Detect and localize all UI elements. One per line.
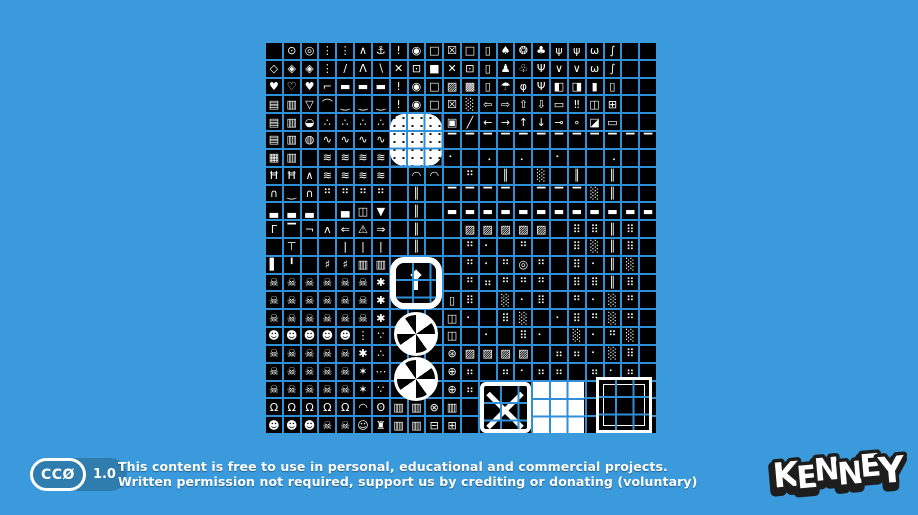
tile-cell	[444, 168, 460, 184]
tile-cell: ▨	[462, 221, 478, 237]
tile-cell: ⠶	[498, 364, 514, 380]
tile-cell: ▩	[462, 79, 478, 95]
tile-cell: ☠	[266, 382, 282, 398]
tile-cell: ♥	[302, 79, 318, 95]
tile-cell	[391, 239, 407, 255]
tile-cell: ◒	[302, 114, 318, 130]
tile-cell: ▔	[551, 132, 567, 148]
tile-cell: ☠	[266, 310, 282, 326]
tile-cell: ◈	[284, 61, 300, 77]
tile-cell: ↑	[515, 114, 531, 130]
tile-cell	[551, 257, 567, 273]
tile-cell	[640, 221, 656, 237]
tile-cell: ▯	[480, 79, 496, 95]
tile-cell: ▨	[480, 221, 496, 237]
tile-cell	[444, 221, 460, 237]
tile-cell: ⇒	[373, 221, 389, 237]
tile-cell: ✱	[373, 292, 389, 308]
tile-cell: ⚓	[373, 43, 389, 59]
tile-cell: ⠿	[569, 310, 585, 326]
tile-cell: ⠛	[622, 310, 638, 326]
tile-cell	[444, 239, 460, 255]
tile-cell: ⠶	[551, 346, 567, 362]
tile-cell: ◉	[409, 79, 425, 95]
tile-cell: ⠶	[462, 382, 478, 398]
tile-cell: ☠	[337, 292, 353, 308]
tile-cell: ▔	[587, 132, 603, 148]
tile-cell: ║	[569, 168, 585, 184]
tile-cell: ♟	[498, 61, 514, 77]
tile-cell: ✶	[355, 364, 371, 380]
tile-cell: φ	[515, 79, 531, 95]
tile-cell: ✕	[444, 61, 460, 77]
tile-cell: ☠	[302, 275, 318, 291]
tile-cell: ∿	[319, 132, 335, 148]
tile-cell: ☠	[319, 346, 335, 362]
tile-cell: ☠	[302, 364, 318, 380]
tile-cell	[622, 96, 638, 112]
tile-cell: →	[498, 114, 514, 130]
tile-cell: ⊞	[605, 96, 621, 112]
tile-cell: □	[426, 79, 442, 95]
tile-cell: ∖	[373, 61, 389, 77]
tile-cell: ♯	[319, 257, 335, 273]
tile-cell: ░	[498, 292, 514, 308]
tile-cell: ⠿	[462, 292, 478, 308]
tile-cell: ⠂	[515, 364, 531, 380]
tile-cell: ◠	[426, 168, 442, 184]
tile-cell: ░	[587, 186, 603, 202]
tile-cell: ☠	[337, 382, 353, 398]
tile-cell: ↓	[533, 114, 549, 130]
tile-cell: ⠛	[569, 292, 585, 308]
tile-cell	[462, 417, 478, 433]
tile-cell: ∿	[355, 132, 371, 148]
tile-cell: ⠛	[498, 257, 514, 273]
tile-cell: ☠	[284, 275, 300, 291]
tile-cell	[426, 221, 442, 237]
tile-cell: ⊗	[426, 399, 442, 415]
tile-cell: ▔	[569, 132, 585, 148]
license-text: This content is free to use in personal,…	[118, 460, 697, 489]
tile-cell: ⠿	[622, 221, 638, 237]
tile-cell: ✱	[355, 346, 371, 362]
tile-cell: ≋	[373, 150, 389, 166]
tile-cell: ▥	[391, 417, 407, 433]
tile-cell: ≋	[337, 150, 353, 166]
tile-cell: ☠	[319, 292, 335, 308]
tile-cell	[426, 186, 442, 202]
tile-cell: ╹	[284, 257, 300, 273]
tile-cell	[391, 203, 407, 219]
tile-cell: ⊟	[426, 417, 442, 433]
tile-cell: ☠	[319, 417, 335, 433]
tile-cell: ⠶	[533, 364, 549, 380]
tile-cell	[640, 310, 656, 326]
tile-cell	[391, 186, 407, 202]
tile-cell: ☠	[302, 310, 318, 326]
tile-cell	[444, 257, 460, 273]
tile-cell: ☠	[302, 346, 318, 362]
tile-cell: ♡	[284, 79, 300, 95]
tile-cell: ⠿	[569, 239, 585, 255]
tile-cell: ⊤	[284, 239, 300, 255]
tile-cell: ║	[498, 168, 514, 184]
tile-cell: ▥	[409, 399, 425, 415]
tile-cell	[569, 364, 585, 380]
tile-cell: ░	[605, 292, 621, 308]
tile-cell: ⊞	[444, 417, 460, 433]
tile-cell: ✱	[373, 310, 389, 326]
tile-cell: ◧	[551, 79, 567, 95]
tile-cell	[640, 239, 656, 255]
tile-cell: ▥	[355, 257, 371, 273]
tile-cell: ⠄	[515, 150, 531, 166]
tile-cell: ⠿	[622, 239, 638, 255]
tile-cell: ▬	[444, 203, 460, 219]
tile-cell: ▨	[462, 346, 478, 362]
tile-cell	[498, 328, 514, 344]
tile-cell: ░	[533, 168, 549, 184]
tile-cell: ▔	[533, 132, 549, 148]
tile-cell	[533, 310, 549, 326]
tile-cell	[391, 168, 407, 184]
kenney-logo-svg: KENNEY KENNEY	[760, 430, 915, 510]
tile-cell: ☠	[284, 310, 300, 326]
tile-cell: ░	[605, 310, 621, 326]
tile-cell: ▔	[605, 132, 621, 148]
license-text-line2: Written permission not required, support…	[118, 475, 697, 490]
tile-cell	[640, 43, 656, 59]
tile-cell: ⠂	[587, 257, 603, 273]
tile-cell: ▨	[480, 346, 496, 362]
tile-cell: Ω	[284, 399, 300, 415]
tile-cell: ▨	[498, 221, 514, 237]
tile-cell	[622, 150, 638, 166]
tile-cell: ∿	[373, 132, 389, 148]
tile-cell: ⠿	[515, 328, 531, 344]
tile-cell: ☻	[302, 417, 318, 433]
tile-cell	[426, 239, 442, 255]
tile-cell: ‿	[337, 96, 353, 112]
tile-cell: ▔	[498, 132, 514, 148]
tile-cell: ⋮	[355, 328, 371, 344]
tile-cell	[551, 275, 567, 291]
tile-cell: ☠	[284, 292, 300, 308]
tile-cell: ░	[515, 310, 531, 326]
tile-cell: ▥	[284, 132, 300, 148]
tile-cell	[533, 150, 549, 166]
tile-cell: ☠	[337, 275, 353, 291]
tile-cell: Ħ	[266, 168, 282, 184]
tile-cell: ▔	[498, 186, 514, 202]
tile-cell	[640, 292, 656, 308]
tile-cell: ╱	[462, 114, 478, 130]
tile-cell	[640, 61, 656, 77]
tile-cell	[622, 79, 638, 95]
tile-cell: ▔	[462, 186, 478, 202]
tile-cell: ☠	[266, 292, 282, 308]
tile-cell: ☺	[355, 417, 371, 433]
tile-cell: ❂	[515, 43, 531, 59]
tile-cell	[640, 79, 656, 95]
kenney-logo: KENNEY KENNEY	[760, 430, 915, 510]
tile-cell: ⠛	[462, 257, 478, 273]
tile-cell: ⠶	[462, 364, 478, 380]
tile-cell	[551, 328, 567, 344]
tile-cell: ▬	[462, 203, 478, 219]
tile-cell: ▽	[302, 96, 318, 112]
tile-cell: ◠	[355, 399, 371, 415]
tile-cell: ≋	[355, 168, 371, 184]
tile-cell: ∩	[302, 186, 318, 202]
tile-cell: ║	[409, 203, 425, 219]
tile-cell: ▥	[391, 399, 407, 415]
tile-cell: □	[462, 43, 478, 59]
tile-cell: ⠿	[569, 275, 585, 291]
tile-cell: Ψ	[533, 61, 549, 77]
cc0-icon: CCØ	[30, 458, 86, 491]
tile-cell: ▔	[480, 132, 496, 148]
tile-cell: ∵	[373, 328, 389, 344]
tile-cell: ☠	[266, 364, 282, 380]
tile-cell: ║	[605, 221, 621, 237]
tile-cell: ⠿	[587, 221, 603, 237]
tile-cell	[640, 346, 656, 362]
tile-cell: ☻	[319, 328, 335, 344]
tile-cell: ☠	[319, 364, 335, 380]
tile-cell: ∩	[266, 186, 282, 202]
tile-cell: ▥	[409, 417, 425, 433]
tile-cell: ║	[605, 168, 621, 184]
tile-cell: ⠿	[622, 275, 638, 291]
statue-icon	[414, 276, 418, 290]
tile-cell: ■	[426, 61, 442, 77]
tile-cell: ⠂	[480, 328, 496, 344]
tile-cell: !	[391, 43, 407, 59]
tile-cell: ☻	[337, 328, 353, 344]
tile-cell: ¬	[302, 221, 318, 237]
tile-cell: ⠿	[587, 275, 603, 291]
tile-cell: ∴	[373, 346, 389, 362]
tile-cell: ☻	[266, 417, 282, 433]
tile-cell: ⋯	[373, 364, 389, 380]
tile-cell: ▔	[462, 132, 478, 148]
tile-cell: ▬	[569, 203, 585, 219]
tile-cell: ⠛	[355, 186, 371, 202]
tile-cell	[551, 292, 567, 308]
tile-cell: ⇨	[498, 96, 514, 112]
tile-cell: ☠	[355, 310, 371, 326]
tile-cell: ‼	[569, 96, 585, 112]
x-braced-crate-tile	[480, 382, 531, 433]
tile-cell: ░	[622, 328, 638, 344]
tile-cell: ▔	[640, 132, 656, 148]
tile-cell: ☠	[337, 364, 353, 380]
tile-cell: Ω	[266, 399, 282, 415]
tile-cell: ▥	[444, 399, 460, 415]
tile-cell	[480, 292, 496, 308]
tile-cell: Ω	[302, 399, 318, 415]
tile-cell: ▯	[480, 43, 496, 59]
tile-cell: ☒	[444, 43, 460, 59]
tile-cell: ⇦	[480, 96, 496, 112]
tile-cell: ☻	[284, 417, 300, 433]
tile-cell	[302, 239, 318, 255]
tile-cell: ☻	[284, 328, 300, 344]
tilesheet-grid: ⊙◎⋮⋮∧⚓!◉□☒□▯♠❂♣ψψω∫◇◈◈⋮∕Λ∖✕⊡■✕⊡▯♟♧Ψ∨∨ω∫♥…	[266, 43, 656, 433]
tile-cell: ▯	[444, 292, 460, 308]
tile-cell: ☠	[355, 275, 371, 291]
tile-cell: ⠿	[533, 292, 549, 308]
tile-cell: ▔	[622, 132, 638, 148]
license-version: 1.0	[93, 467, 116, 482]
tile-cell: ⠛	[605, 328, 621, 344]
tile-cell: ▮	[587, 79, 603, 95]
tile-cell: ∧	[355, 43, 371, 59]
tile-cell: ⠂	[587, 292, 603, 308]
tile-cell: ▬	[533, 203, 549, 219]
tile-cell: ▃	[302, 203, 318, 219]
tile-cell: ▬	[622, 203, 638, 219]
tile-cell: ║	[605, 275, 621, 291]
tile-cell: ‿	[373, 96, 389, 112]
tile-cell	[444, 275, 460, 291]
tile-cell	[462, 150, 478, 166]
tile-cell: ◨	[569, 79, 585, 95]
tile-cell: ♜	[373, 417, 389, 433]
tile-cell: ║	[605, 239, 621, 255]
tile-cell: ▬	[640, 203, 656, 219]
tile-cell: ▬	[373, 79, 389, 95]
tile-cell: ∫	[605, 61, 621, 77]
tile-cell: ☠	[266, 275, 282, 291]
tile-cell: Ψ	[533, 79, 549, 95]
tile-cell: ⠛	[319, 186, 335, 202]
tile-cell: ☠	[284, 346, 300, 362]
tile-cell	[587, 168, 603, 184]
tile-cell: ☠	[337, 417, 353, 433]
tile-cell	[266, 239, 282, 255]
tile-cell: ⠛	[337, 186, 353, 202]
tile-cell	[640, 150, 656, 166]
tile-cell: ▨	[498, 346, 514, 362]
tile-cell: ψ	[551, 43, 567, 59]
tile-cell: ∴	[373, 114, 389, 130]
tile-cell: ⋮	[337, 43, 353, 59]
tile-cell: ⠿	[622, 346, 638, 362]
tile-cell: ⠛	[373, 186, 389, 202]
tile-cell: ⠛	[462, 275, 478, 291]
tile-cell: ⠶	[480, 275, 496, 291]
tile-cell: ▔	[444, 186, 460, 202]
tile-cell: ⌒	[319, 96, 335, 112]
tile-cell: ⊛	[444, 346, 460, 362]
tile-cell: ║	[409, 239, 425, 255]
tile-cell: Γ	[266, 221, 282, 237]
tile-cell: ⠶	[551, 364, 567, 380]
tile-cell	[640, 96, 656, 112]
tile-cell: ⠛	[515, 275, 531, 291]
tile-cell: ▃	[266, 203, 282, 219]
tile-cell: ▬	[355, 79, 371, 95]
fan-turbine-tile-bottom	[394, 357, 438, 401]
tile-cell: ☠	[302, 382, 318, 398]
tile-cell	[480, 168, 496, 184]
tile-cell: ◪	[587, 114, 603, 130]
tile-cell	[640, 186, 656, 202]
tile-cell: ▨	[515, 221, 531, 237]
tile-cell: |	[373, 239, 389, 255]
tile-cell: ≋	[319, 150, 335, 166]
tile-cell: ▨	[533, 221, 549, 237]
tile-cell: ⠛	[515, 239, 531, 255]
tile-cell: ⠛	[533, 257, 549, 273]
tile-cell: ◇	[266, 61, 282, 77]
tile-cell	[319, 203, 335, 219]
tile-cell: ⇧	[515, 96, 531, 112]
tile-cell: ⊸	[551, 114, 567, 130]
tile-cell: ≋	[337, 168, 353, 184]
fan-turbine-tile-top	[394, 312, 438, 356]
tile-cell: ∴	[319, 114, 335, 130]
tile-cell: ◫	[444, 328, 460, 344]
tile-cell	[640, 328, 656, 344]
tile-cell: ▬	[587, 203, 603, 219]
tile-cell: ⠛	[533, 275, 549, 291]
tile-cell: ∧	[302, 168, 318, 184]
tile-cell: ▤	[266, 132, 282, 148]
tile-cell: ⠛	[587, 310, 603, 326]
tile-cell: !	[391, 96, 407, 112]
tile-cell: ⠂	[587, 328, 603, 344]
tile-cell	[640, 257, 656, 273]
tile-cell: ▼	[373, 203, 389, 219]
tile-cell: ▬	[605, 203, 621, 219]
tile-cell: ⠂	[444, 150, 460, 166]
tile-cell: ░	[587, 239, 603, 255]
tile-cell: ▔	[569, 186, 585, 202]
tile-cell: ▥	[284, 96, 300, 112]
tile-cell	[515, 186, 531, 202]
tile-cell: ⠂	[515, 292, 531, 308]
tile-cell: ☒	[444, 96, 460, 112]
tile-cell: ∨	[551, 61, 567, 77]
tile-cell	[426, 203, 442, 219]
tile-cell: ⌐	[319, 79, 335, 95]
tile-cell: ♥	[266, 79, 282, 95]
tile-cell	[622, 186, 638, 202]
tile-cell	[462, 328, 478, 344]
tile-cell: Ħ	[284, 168, 300, 184]
tile-cell: ☠	[337, 346, 353, 362]
tile-cell: ∵	[373, 382, 389, 398]
tile-cell: ◉	[409, 96, 425, 112]
tile-cell: ☠	[319, 275, 335, 291]
tile-cell: ◎	[302, 43, 318, 59]
tile-cell: ⠶	[569, 346, 585, 362]
tile-cell: ⠿	[569, 257, 585, 273]
tile-cell: ▨	[515, 346, 531, 362]
tile-cell: ║	[409, 186, 425, 202]
tile-cell	[569, 150, 585, 166]
tile-cell: ░	[569, 328, 585, 344]
tile-cell: ψ	[569, 43, 585, 59]
cc0-badge: CCØ 1.0	[30, 458, 127, 491]
tile-cell: ⠂	[551, 310, 567, 326]
tile-cell: ⊡	[462, 61, 478, 77]
tile-cell: ☠	[355, 292, 371, 308]
